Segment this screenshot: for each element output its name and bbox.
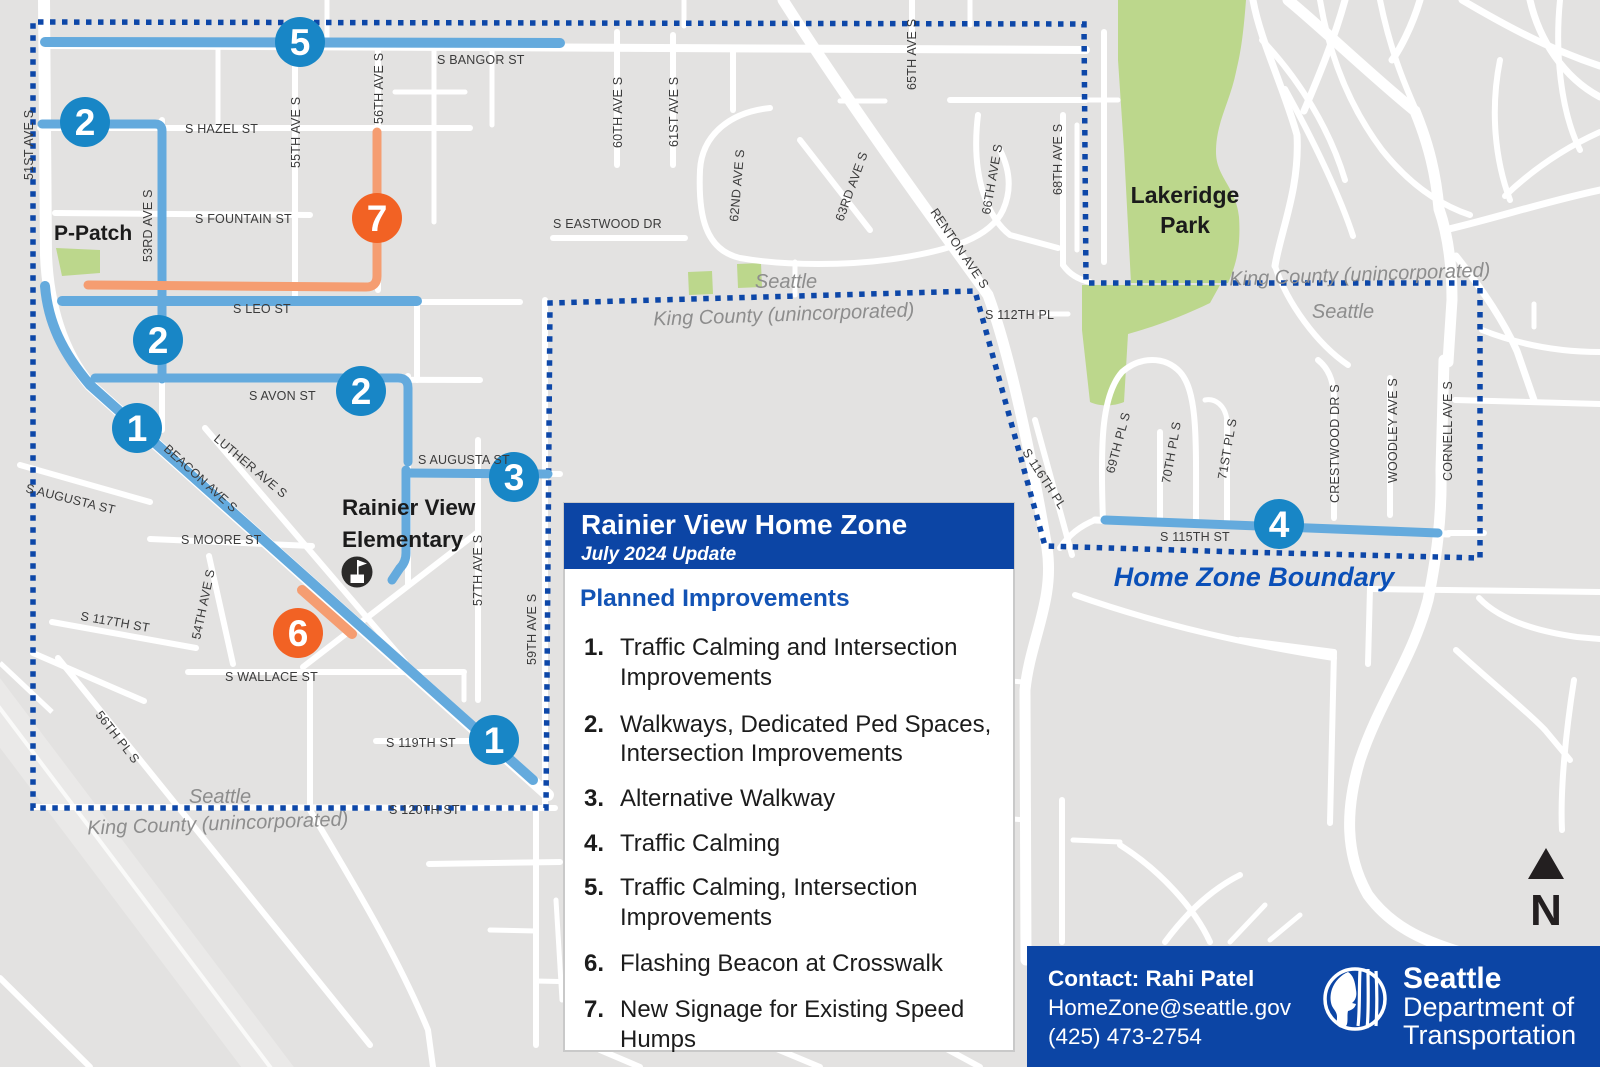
svg-text:Planned Improvements: Planned Improvements: [580, 585, 850, 612]
svg-text:S FOUNTAIN ST: S FOUNTAIN ST: [195, 212, 292, 226]
svg-text:Humps: Humps: [620, 1026, 696, 1053]
svg-text:Improvements: Improvements: [620, 904, 772, 931]
svg-text:S AUGUSTA ST: S AUGUSTA ST: [418, 453, 510, 467]
svg-text:Traffic Calming: Traffic Calming: [620, 830, 780, 857]
svg-text:2.: 2.: [584, 711, 604, 738]
svg-text:S MOORE ST: S MOORE ST: [181, 533, 262, 547]
svg-text:1.: 1.: [584, 634, 604, 661]
svg-text:Rainier View: Rainier View: [342, 495, 476, 520]
svg-text:Traffic Calming, Intersection: Traffic Calming, Intersection: [620, 874, 917, 901]
svg-text:Seattle: Seattle: [755, 271, 817, 293]
svg-text:61ST AVE S: 61ST AVE S: [667, 77, 681, 147]
svg-text:Seattle: Seattle: [1312, 301, 1374, 323]
svg-text:Walkways, Dedicated Ped Spaces: Walkways, Dedicated Ped Spaces,: [620, 711, 991, 738]
svg-text:Contact: Rahi Patel: Contact: Rahi Patel: [1048, 966, 1254, 991]
svg-text:WOODLEY AVE S: WOODLEY AVE S: [1386, 378, 1400, 483]
svg-text:Traffic Calming and Intersecti: Traffic Calming and Intersection: [620, 634, 958, 661]
svg-text:4.: 4.: [584, 830, 604, 857]
svg-text:P-Patch: P-Patch: [54, 222, 132, 245]
svg-text:3.: 3.: [584, 785, 604, 812]
svg-text:CRESTWOOD DR S: CRESTWOOD DR S: [1328, 384, 1342, 503]
svg-text:6: 6: [288, 613, 309, 654]
svg-text:Alternative Walkway: Alternative Walkway: [620, 785, 835, 812]
svg-text:S 119TH ST: S 119TH ST: [386, 736, 456, 750]
svg-text:7.: 7.: [584, 996, 604, 1023]
svg-text:S 120TH ST: S 120TH ST: [389, 803, 460, 817]
svg-text:5.: 5.: [584, 874, 604, 901]
svg-text:51ST AVE S: 51ST AVE S: [22, 110, 36, 180]
svg-text:Transportation: Transportation: [1403, 1020, 1576, 1050]
svg-text:N: N: [1530, 886, 1562, 935]
svg-text:2: 2: [148, 320, 169, 361]
svg-text:S 112TH PL: S 112TH PL: [985, 308, 1054, 322]
svg-text:S HAZEL ST: S HAZEL ST: [185, 122, 258, 136]
svg-text:Rainier View Home Zone: Rainier View Home Zone: [581, 509, 907, 540]
svg-text:S BANGOR ST: S BANGOR ST: [437, 53, 525, 67]
svg-text:Improvements: Improvements: [620, 664, 772, 691]
svg-text:S WALLACE ST: S WALLACE ST: [225, 670, 318, 684]
svg-text:S 115TH ST: S 115TH ST: [1160, 530, 1230, 544]
svg-text:6.: 6.: [584, 950, 604, 977]
svg-text:Seattle: Seattle: [1403, 962, 1501, 995]
svg-text:S EASTWOOD DR: S EASTWOOD DR: [553, 217, 662, 231]
svg-text:S AVON ST: S AVON ST: [249, 389, 316, 403]
svg-text:Home Zone Boundary: Home Zone Boundary: [1114, 562, 1397, 592]
svg-text:55TH AVE S: 55TH AVE S: [289, 97, 303, 168]
svg-text:65TH AVE S: 65TH AVE S: [905, 19, 919, 90]
svg-text:Seattle: Seattle: [189, 786, 251, 808]
svg-text:Elementary: Elementary: [342, 527, 464, 552]
svg-text:July 2024 Update: July 2024 Update: [581, 544, 737, 565]
svg-text:56TH AVE S: 56TH AVE S: [372, 53, 386, 124]
svg-text:2: 2: [75, 102, 96, 143]
svg-text:1: 1: [127, 408, 148, 449]
svg-text:Flashing Beacon at Crosswalk: Flashing Beacon at Crosswalk: [620, 950, 944, 977]
svg-text:S LEO ST: S LEO ST: [233, 302, 291, 316]
svg-text:4: 4: [1269, 504, 1290, 545]
svg-text:(425) 473-2754: (425) 473-2754: [1048, 1024, 1202, 1049]
svg-text:53RD AVE S: 53RD AVE S: [141, 189, 155, 262]
svg-text:5: 5: [290, 22, 311, 63]
svg-text:HomeZone@seattle.gov: HomeZone@seattle.gov: [1048, 995, 1292, 1020]
svg-text:CORNELL AVE S: CORNELL AVE S: [1441, 381, 1455, 481]
svg-text:57TH AVE S: 57TH AVE S: [471, 535, 485, 606]
svg-text:Department of: Department of: [1403, 992, 1575, 1022]
svg-text:1: 1: [484, 720, 505, 761]
svg-text:59TH AVE S: 59TH AVE S: [525, 594, 539, 665]
svg-text:Park: Park: [1160, 212, 1210, 238]
svg-text:Intersection Improvements: Intersection Improvements: [620, 740, 903, 767]
svg-text:68TH AVE S: 68TH AVE S: [1051, 124, 1065, 195]
svg-text:New Signage for Existing Speed: New Signage for Existing Speed: [620, 996, 964, 1023]
svg-text:2: 2: [351, 371, 372, 412]
svg-text:60TH AVE S: 60TH AVE S: [611, 77, 625, 148]
svg-text:Lakeridge: Lakeridge: [1131, 182, 1240, 208]
svg-text:7: 7: [367, 198, 388, 239]
